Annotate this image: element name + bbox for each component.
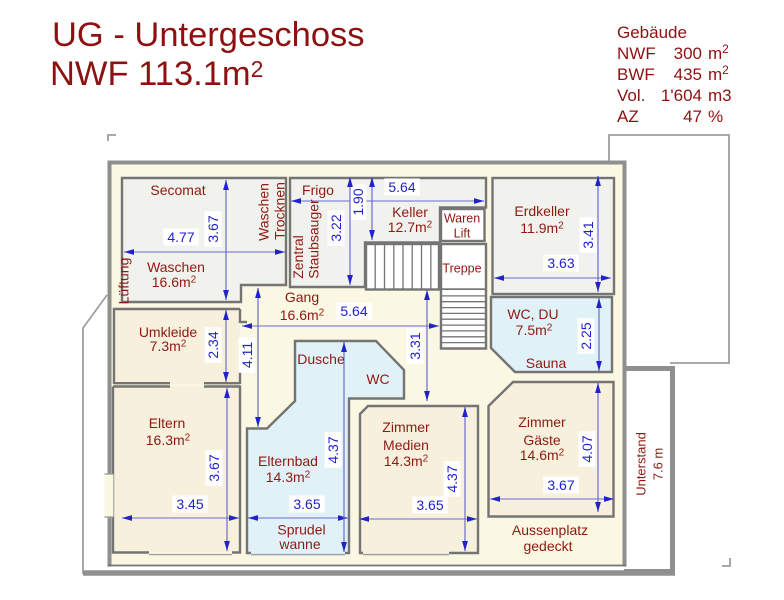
svg-text:wanne: wanne: [278, 536, 320, 552]
svg-text:14.6m2: 14.6m2: [520, 447, 565, 463]
svg-text:11.9m2: 11.9m2: [520, 220, 564, 236]
svg-text:WC, DU: WC, DU: [507, 306, 558, 322]
svg-text:1.90: 1.90: [350, 188, 366, 215]
svg-text:14.3m2: 14.3m2: [266, 469, 311, 485]
svg-text:Waschen: Waschen: [255, 183, 271, 241]
svg-text:4.37: 4.37: [444, 465, 460, 492]
svg-text:BWF: BWF: [617, 65, 655, 84]
svg-text:3.45: 3.45: [176, 496, 203, 512]
svg-text:3.31: 3.31: [407, 332, 423, 359]
svg-text:Medien: Medien: [383, 437, 429, 453]
svg-text:1'604: 1'604: [661, 86, 702, 105]
svg-text:Zimmer: Zimmer: [382, 419, 430, 435]
svg-text:Elternbad: Elternbad: [258, 453, 318, 469]
svg-text:UG - Untergeschoss: UG - Untergeschoss: [52, 16, 365, 54]
svg-text:4.11: 4.11: [239, 342, 255, 368]
svg-text:Aussenplatz: Aussenplatz: [512, 522, 588, 538]
svg-text:%: %: [708, 107, 723, 126]
svg-text:4.37: 4.37: [325, 436, 341, 463]
svg-text:Zimmer: Zimmer: [518, 414, 566, 430]
svg-text:Secomat: Secomat: [150, 182, 205, 198]
svg-text:12.7m2: 12.7m2: [388, 219, 433, 235]
svg-text:3.65: 3.65: [416, 497, 443, 513]
svg-text:NWF 113.1m2: NWF 113.1m2: [50, 55, 263, 93]
svg-text:4.07: 4.07: [579, 435, 595, 462]
svg-text:16.6m2: 16.6m2: [152, 274, 197, 290]
svg-text:16.6m2: 16.6m2: [280, 307, 325, 323]
svg-text:4.77: 4.77: [167, 229, 194, 245]
svg-text:5.64: 5.64: [388, 179, 415, 195]
svg-text:Lüftung: Lüftung: [115, 258, 131, 305]
svg-text:2.25: 2.25: [578, 322, 594, 349]
svg-text:WC: WC: [366, 371, 389, 387]
svg-text:16.3m2: 16.3m2: [146, 432, 191, 448]
svg-text:14.3m2: 14.3m2: [384, 453, 429, 469]
svg-text:Zentral: Zentral: [290, 235, 306, 279]
svg-text:m2: m2: [708, 42, 729, 63]
svg-text:3.67: 3.67: [206, 454, 222, 481]
svg-text:435: 435: [674, 65, 702, 84]
svg-text:NWF: NWF: [617, 44, 656, 63]
svg-text:m3: m3: [708, 86, 732, 105]
svg-text:Lift: Lift: [454, 226, 471, 240]
svg-text:Treppe: Treppe: [442, 261, 481, 275]
svg-text:AZ: AZ: [617, 107, 639, 126]
svg-text:Gebäude: Gebäude: [617, 23, 687, 42]
svg-text:Unterstand: Unterstand: [634, 432, 649, 496]
svg-text:3.67: 3.67: [205, 215, 221, 242]
svg-text:Sauna: Sauna: [526, 355, 567, 371]
svg-text:Eltern: Eltern: [149, 415, 186, 431]
svg-text:Trocknen: Trocknen: [271, 182, 287, 240]
svg-text:5.64: 5.64: [340, 303, 367, 319]
svg-text:Waschen: Waschen: [147, 259, 205, 275]
svg-text:Frigo: Frigo: [302, 182, 334, 198]
svg-text:Vol.: Vol.: [617, 86, 645, 105]
svg-text:3.41: 3.41: [580, 221, 596, 248]
svg-text:Keller: Keller: [392, 204, 428, 220]
svg-text:Erdkeller: Erdkeller: [514, 203, 570, 219]
svg-text:Gäste: Gäste: [523, 432, 561, 448]
svg-text:Dusche: Dusche: [297, 351, 345, 367]
svg-text:Waren: Waren: [444, 211, 480, 225]
svg-text:7.6 m: 7.6 m: [651, 448, 666, 481]
svg-text:gedeckt: gedeckt: [523, 538, 572, 554]
svg-text:Staubsauger: Staubsauger: [305, 199, 321, 279]
svg-text:2.34: 2.34: [205, 331, 221, 358]
svg-text:3.22: 3.22: [328, 214, 344, 241]
svg-text:m2: m2: [708, 63, 729, 84]
svg-text:3.63: 3.63: [547, 255, 574, 271]
svg-text:300: 300: [674, 44, 702, 63]
svg-text:3.67: 3.67: [547, 477, 574, 493]
svg-text:Gang: Gang: [285, 289, 319, 305]
svg-text:3.65: 3.65: [293, 496, 320, 512]
svg-text:47: 47: [683, 107, 702, 126]
